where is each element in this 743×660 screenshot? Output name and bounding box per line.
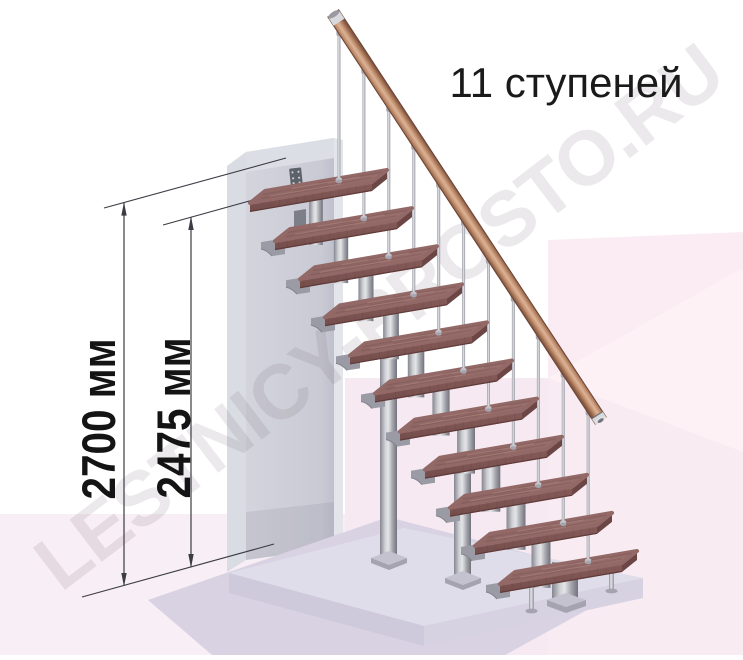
svg-text:11 ступеней: 11 ступеней bbox=[449, 59, 682, 106]
svg-text:2700 мм: 2700 мм bbox=[73, 339, 126, 500]
svg-text:2475 мм: 2475 мм bbox=[148, 338, 201, 499]
